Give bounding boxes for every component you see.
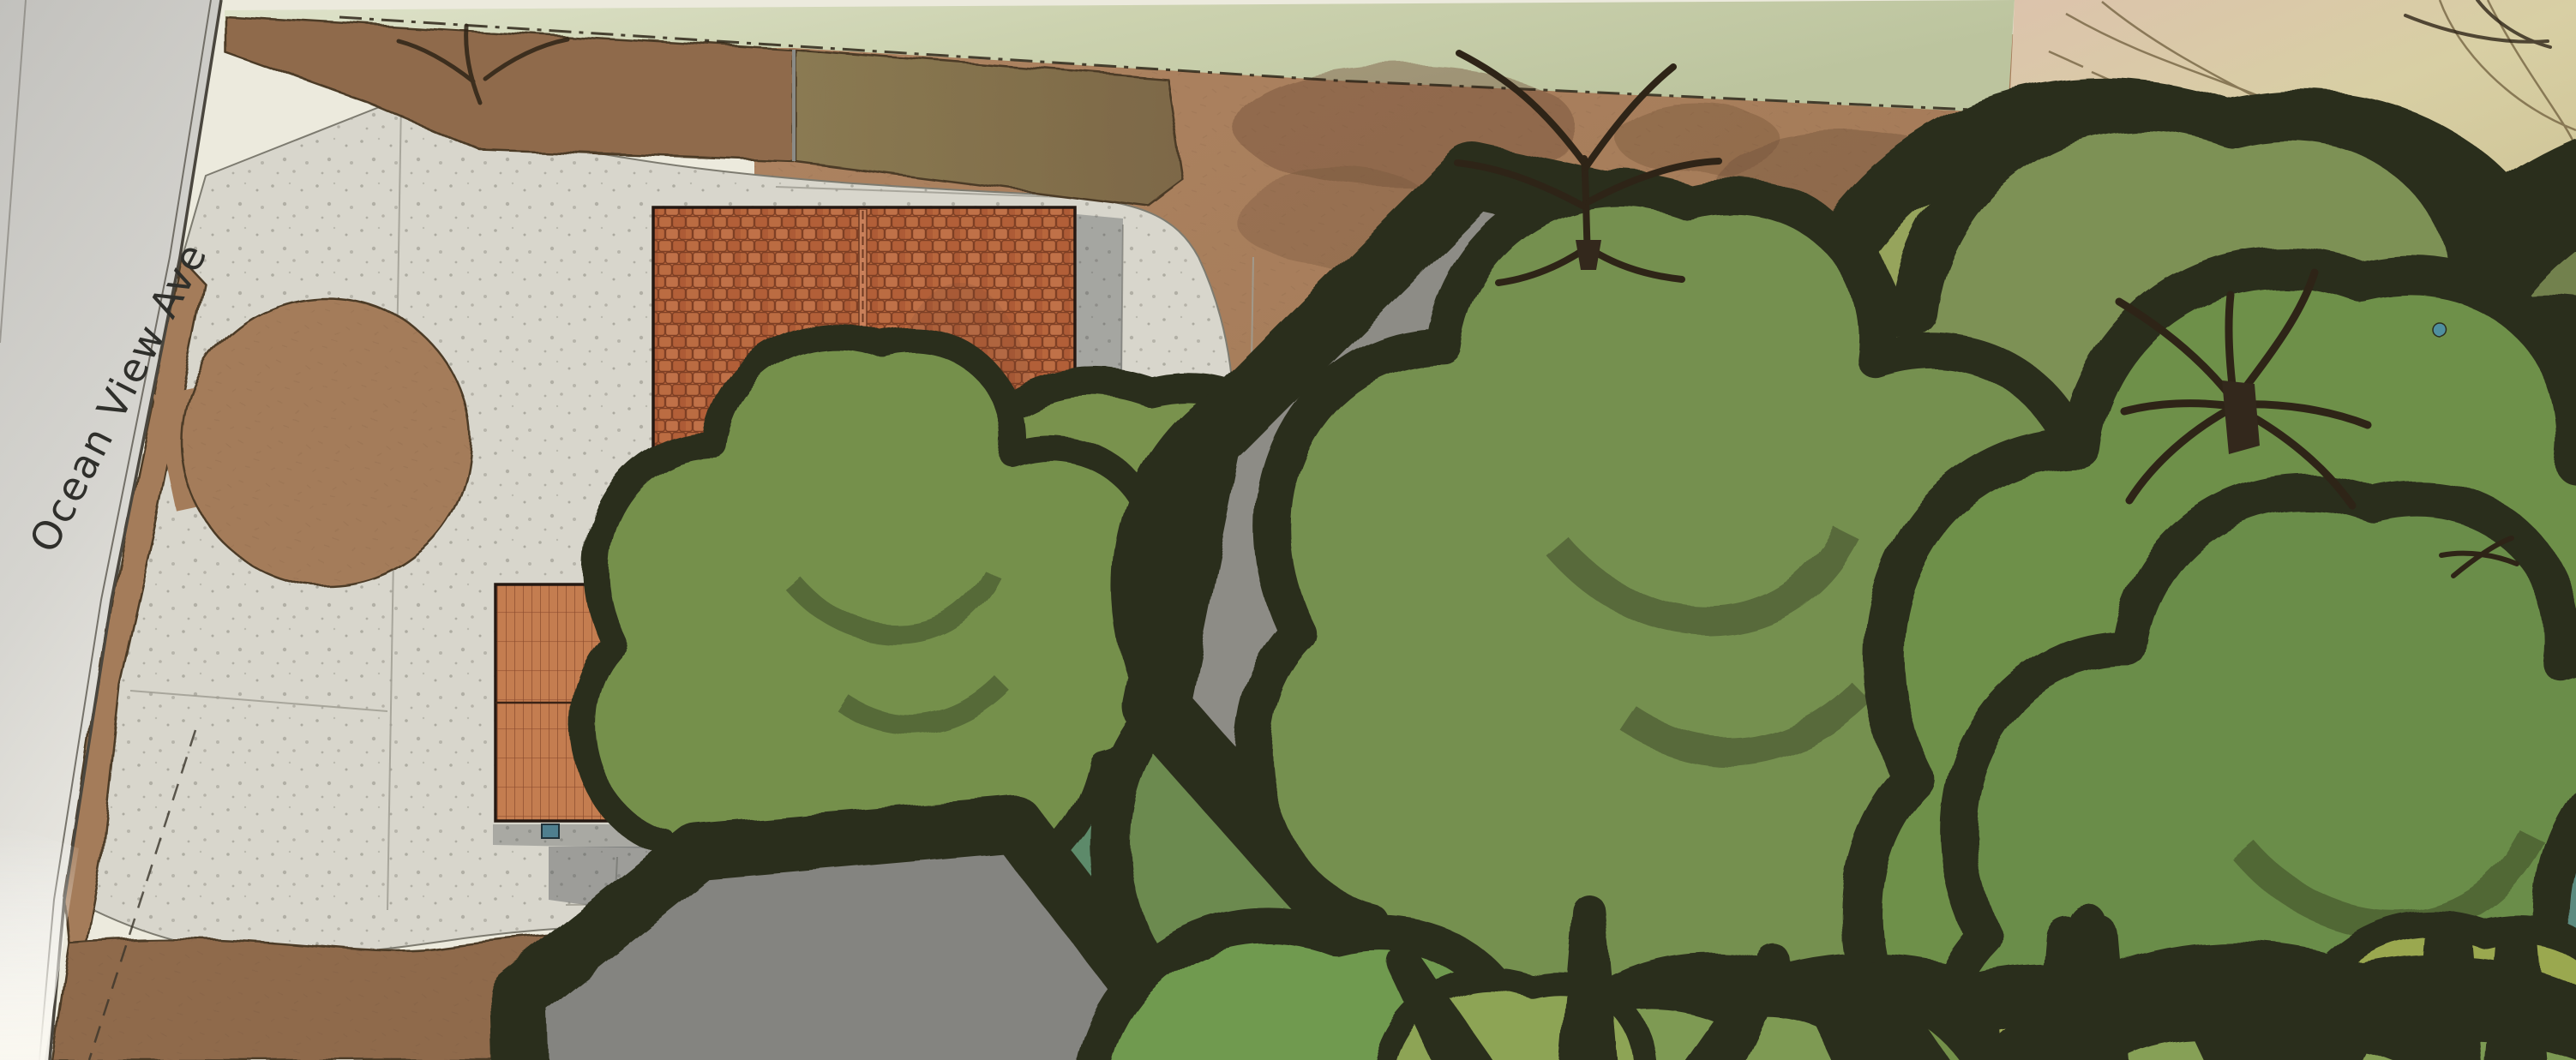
utility-box <box>542 824 559 838</box>
site-plan: Ocean View Ave <box>0 0 2576 1060</box>
pond-dot <box>2433 323 2447 337</box>
